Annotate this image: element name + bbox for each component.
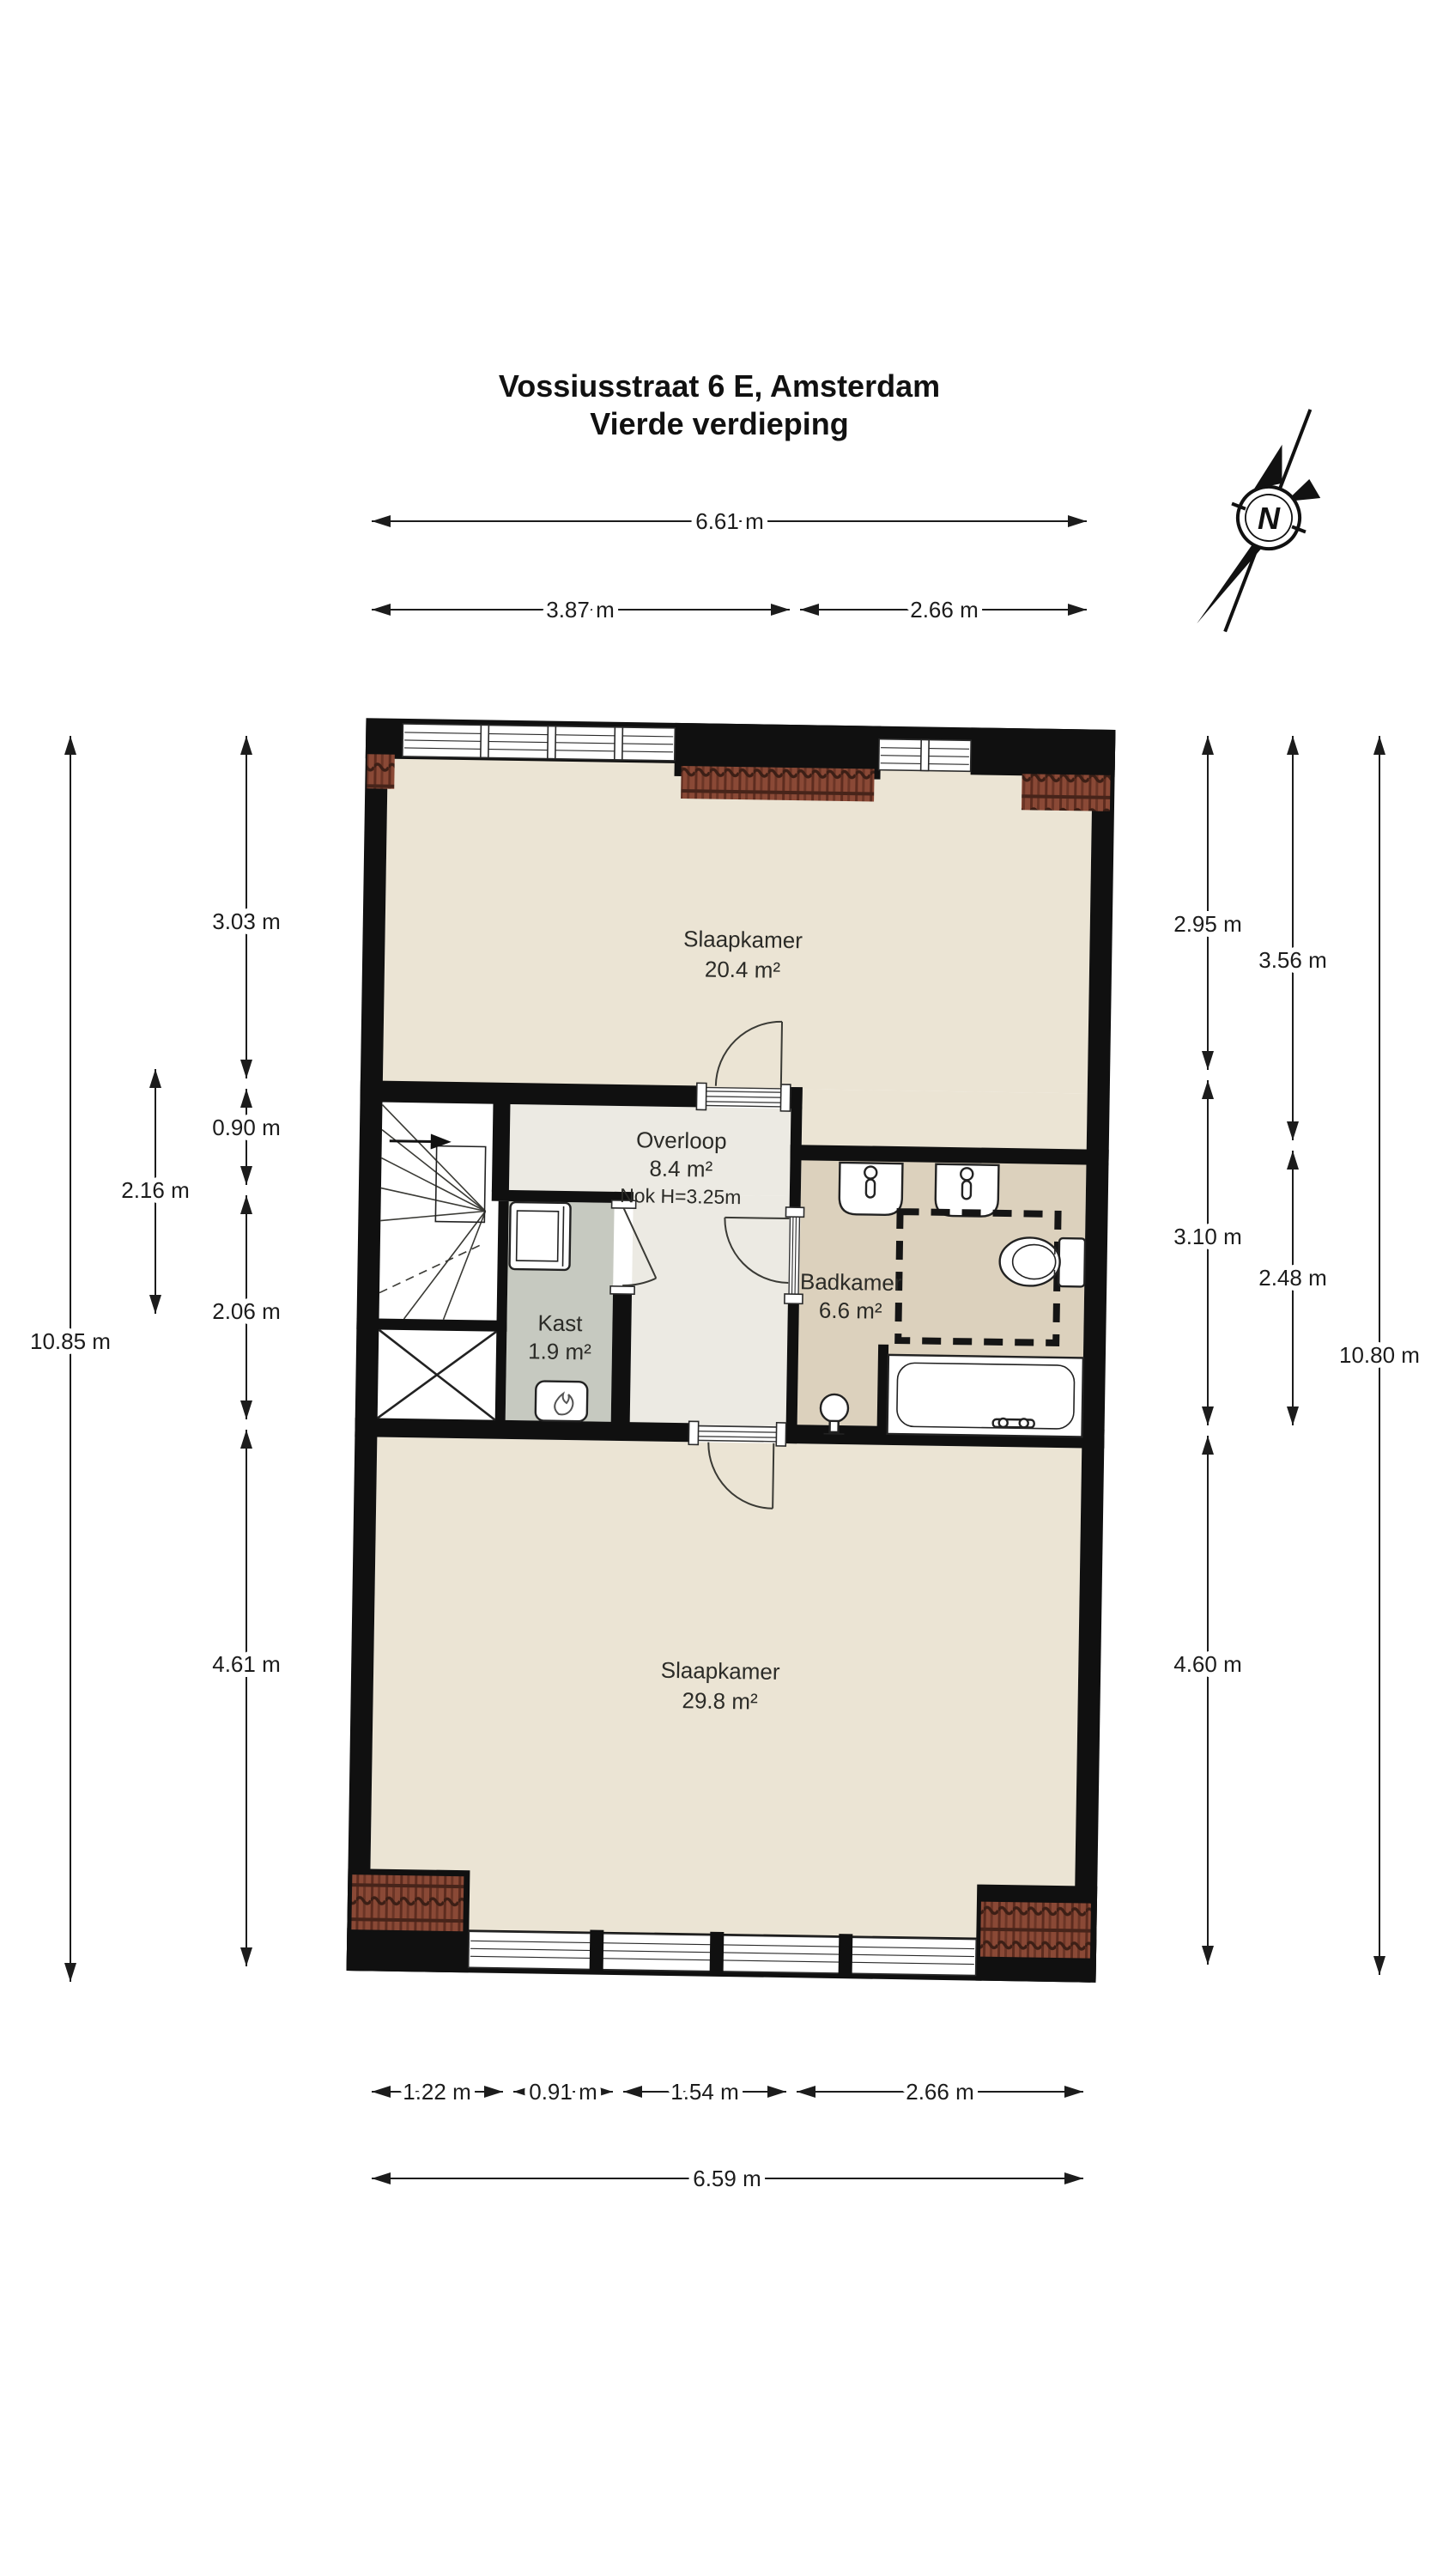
- door-threshold-bed1: [703, 1087, 783, 1106]
- dim-top-seg2: 2.66 m: [910, 597, 979, 623]
- roof-tiles-topleft: [367, 754, 395, 788]
- dim-right-c1s2: 3.10 m: [1173, 1224, 1242, 1249]
- door-threshold-bath: [789, 1216, 799, 1296]
- label-overloop-area: 8.4 m²: [649, 1155, 712, 1182]
- dim-bottom-seg2: 0.91 m: [529, 2079, 597, 2105]
- dim-left-seg1: 3.03 m: [212, 908, 281, 934]
- label-slaapkamer2-area: 29.8 m²: [682, 1687, 758, 1714]
- wall-top-right-corner: [971, 727, 1116, 777]
- wall-kast-right-b: [611, 1289, 632, 1424]
- label-badkamer-area: 6.6 m²: [819, 1297, 882, 1324]
- sink-tap-icon: [962, 1181, 971, 1199]
- page-title: Vossiusstraat 6 E, Amsterdam Vierde verd…: [499, 368, 940, 441]
- stair-direction-arrow: [390, 1141, 433, 1142]
- window-mullion: [710, 1932, 724, 1975]
- dim-right-c2s1: 3.56 m: [1258, 947, 1327, 973]
- pedestal-basin-symbol: [821, 1394, 848, 1422]
- dim-left-seg4: 4.61 m: [212, 1651, 281, 1677]
- toilet-tank: [1058, 1238, 1085, 1286]
- label-slaapkamer2-name: Slaapkamer: [661, 1657, 781, 1685]
- bathtub-symbol: [888, 1355, 1083, 1437]
- title-line1: Vossiusstraat 6 E, Amsterdam: [499, 368, 940, 404]
- roof-tiles-dormer: [681, 766, 875, 802]
- floorplan-page: Vossiusstraat 6 E, Amsterdam Vierde verd…: [0, 0, 1449, 2576]
- dim-left-seg2: 0.90 m: [212, 1115, 281, 1140]
- dim-top-seg1: 3.87 m: [546, 597, 615, 623]
- label-badkamer-name: Badkamer: [800, 1268, 902, 1296]
- wall-stair-right: [492, 1084, 511, 1192]
- dim-left-seg3: 2.06 m: [212, 1298, 281, 1324]
- dim-right-c1s1: 2.95 m: [1173, 911, 1242, 937]
- label-slaapkamer1-name: Slaapkamer: [683, 926, 803, 953]
- roof-tiles-bottomright: [980, 1902, 1091, 1959]
- window-mullion: [590, 1930, 604, 1973]
- compass-rose-icon: N: [1187, 395, 1349, 648]
- door-threshold-bed2: [695, 1425, 779, 1442]
- washer-symbol: [509, 1202, 570, 1270]
- dim-left-stair: 2.16 m: [121, 1177, 190, 1203]
- roof-tiles-bottomleft: [351, 1874, 464, 1931]
- dimensions-bottom: 1.22 m 0.91 m 1.54 m 2.66 m 6.59 m: [372, 2079, 1083, 2191]
- label-kast-area: 1.9 m²: [528, 1338, 591, 1364]
- label-kast-name: Kast: [537, 1309, 583, 1336]
- dimensions-right: 2.95 m 3.10 m 4.60 m 3.56 m 2.48 m 10.80…: [1173, 736, 1420, 1975]
- wall-landing-bath-b: [785, 1296, 799, 1443]
- dim-bottom-seg3: 1.54 m: [670, 2079, 739, 2105]
- dim-top-total: 6.61 m: [695, 508, 764, 534]
- dim-right-c1s3: 4.60 m: [1173, 1651, 1242, 1677]
- roof-tiles-topright: [1022, 774, 1111, 811]
- compass-north-label: N: [1258, 501, 1281, 536]
- sink-tap-icon: [866, 1179, 875, 1197]
- label-overloop-note: Nok H=3.25m: [620, 1184, 742, 1208]
- label-slaapkamer1-area: 20.4 m²: [705, 956, 781, 982]
- floorplan-canvas: Vossiusstraat 6 E, Amsterdam Vierde verd…: [0, 0, 1449, 2576]
- dim-left-total: 10.85 m: [30, 1328, 111, 1354]
- dim-bottom-seg1: 1.22 m: [403, 2079, 471, 2105]
- dim-bottom-seg4: 2.66 m: [906, 2079, 974, 2105]
- window-mullion: [839, 1934, 853, 1977]
- dim-bottom-total: 6.59 m: [693, 2166, 761, 2191]
- dimensions-left: 10.85 m 3.03 m 0.90 m 2.06 m 4.61 m 2.16…: [30, 736, 281, 1982]
- title-line2: Vierde verdieping: [590, 406, 848, 441]
- label-overloop-name: Overloop: [636, 1127, 727, 1154]
- floor-slaapkamer1: [383, 756, 1093, 1094]
- dim-right-total: 10.80 m: [1339, 1342, 1420, 1368]
- dim-right-c2s2: 2.48 m: [1258, 1265, 1327, 1291]
- floorplan: Slaapkamer 20.4 m² Overloop 8.4 m² Nok H…: [347, 718, 1116, 1983]
- dimensions-top: 6.61 m 3.87 m 2.66 m: [372, 508, 1087, 623]
- floor-overloop: [630, 1194, 790, 1426]
